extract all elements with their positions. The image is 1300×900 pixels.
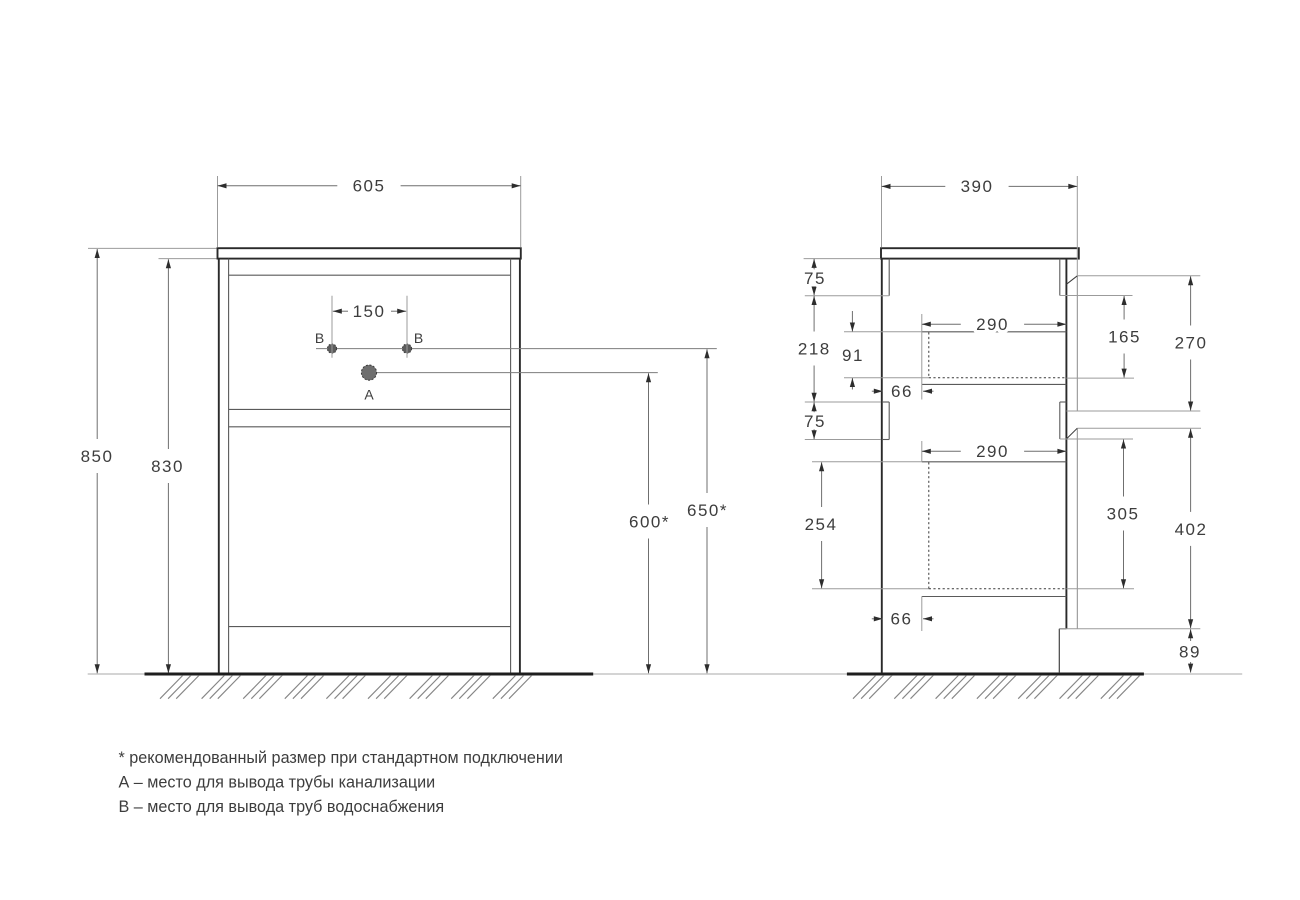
- svg-text:B: B: [315, 330, 324, 346]
- svg-text:270: 270: [1175, 334, 1208, 353]
- svg-text:390: 390: [961, 177, 994, 196]
- svg-text:850: 850: [81, 447, 114, 466]
- svg-text:254: 254: [805, 515, 838, 534]
- svg-text:605: 605: [353, 177, 386, 196]
- svg-text:290: 290: [976, 315, 1009, 334]
- svg-text:650*: 650*: [687, 501, 728, 520]
- svg-text:A: A: [364, 386, 374, 402]
- svg-text:А – место для вывода трубы кан: А – место для вывода трубы канализации: [119, 774, 436, 792]
- svg-text:290: 290: [976, 442, 1009, 461]
- svg-text:91: 91: [842, 346, 864, 365]
- svg-text:75: 75: [804, 269, 826, 288]
- svg-text:В – место для вывода труб водо: В – место для вывода труб водоснабжения: [119, 798, 445, 816]
- svg-text:830: 830: [151, 457, 184, 476]
- svg-text:305: 305: [1107, 505, 1140, 524]
- svg-text:150: 150: [353, 302, 386, 321]
- svg-text:66: 66: [891, 382, 913, 401]
- svg-text:402: 402: [1175, 520, 1208, 539]
- svg-text:66: 66: [891, 610, 913, 629]
- svg-text:600*: 600*: [629, 513, 670, 532]
- svg-text:218: 218: [798, 340, 831, 359]
- svg-text:* рекомендованный размер при с: * рекомендованный размер при стандартном…: [119, 749, 563, 767]
- svg-text:B: B: [414, 330, 423, 346]
- svg-text:75: 75: [804, 412, 826, 431]
- svg-text:165: 165: [1108, 328, 1141, 347]
- svg-text:89: 89: [1179, 643, 1201, 662]
